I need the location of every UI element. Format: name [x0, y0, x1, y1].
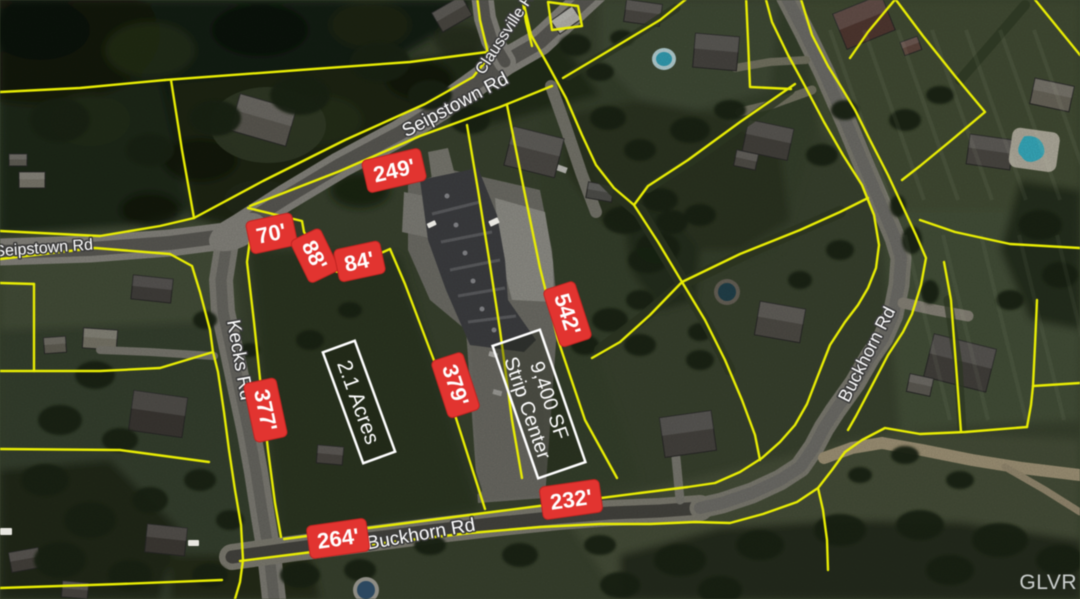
- svg-text:GLVR: GLVR: [1019, 571, 1077, 594]
